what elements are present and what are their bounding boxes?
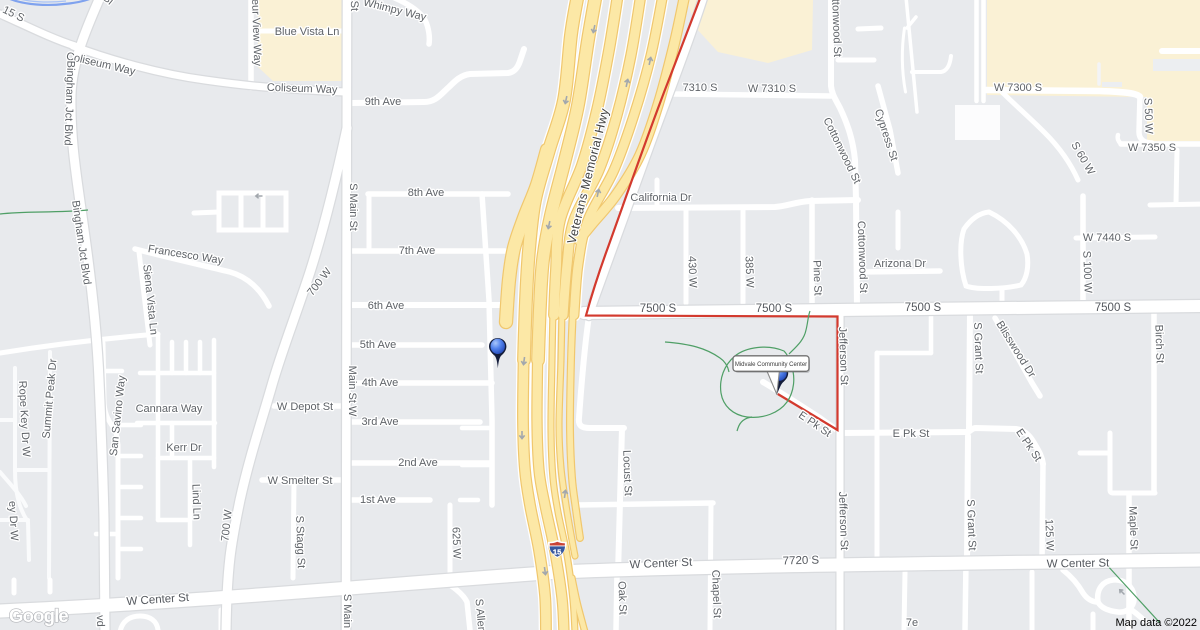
svg-text:W 7440 S: W 7440 S — [1083, 232, 1131, 244]
svg-text:E Pk St: E Pk St — [893, 428, 930, 440]
svg-text:S 50 W: S 50 W — [1141, 98, 1154, 135]
svg-text:vd: vd — [94, 615, 106, 627]
svg-text:7500 S: 7500 S — [905, 302, 942, 314]
svg-text:430 W: 430 W — [685, 256, 698, 289]
svg-text:Pine St: Pine St — [810, 260, 823, 296]
svg-text:Blue Vista Ln: Blue Vista Ln — [275, 26, 340, 38]
svg-text:7310 S: 7310 S — [683, 82, 718, 94]
svg-text:7720 S: 7720 S — [783, 555, 820, 568]
svg-text:W Depot St: W Depot St — [277, 401, 333, 413]
svg-text:S 100 W: S 100 W — [1080, 251, 1093, 294]
svg-text:Oak St: Oak St — [615, 581, 628, 615]
svg-text:625 W: 625 W — [449, 527, 462, 560]
svg-text:W Smelter St: W Smelter St — [268, 475, 333, 487]
svg-text:Main St W: Main St W — [346, 366, 358, 417]
svg-text:15: 15 — [553, 547, 562, 556]
svg-text:S Grant St: S Grant St — [971, 322, 985, 374]
svg-text:3rd Ave: 3rd Ave — [361, 416, 398, 428]
svg-text:385 W: 385 W — [742, 256, 755, 289]
svg-text:9th Ave: 9th Ave — [365, 96, 402, 108]
svg-text:1st Ave: 1st Ave — [360, 494, 396, 506]
svg-text:W 7350 S: W 7350 S — [1128, 142, 1176, 154]
svg-text:8th Ave: 8th Ave — [408, 187, 445, 199]
svg-text:5th Ave: 5th Ave — [360, 339, 397, 351]
svg-text:Lind Ln: Lind Ln — [189, 484, 202, 520]
svg-text:6th Ave: 6th Ave — [368, 300, 405, 312]
svg-text:2nd Ave: 2nd Ave — [398, 457, 438, 469]
svg-text:Arizona Dr: Arizona Dr — [874, 258, 926, 270]
svg-text:7500 S: 7500 S — [1095, 302, 1132, 314]
svg-text:Google: Google — [9, 605, 68, 626]
svg-text:Map data ©2022: Map data ©2022 — [1116, 617, 1198, 629]
svg-text:California Dr: California Dr — [630, 192, 691, 204]
svg-text:W 7300 S: W 7300 S — [994, 82, 1042, 94]
svg-text:S Stagg St: S Stagg St — [293, 515, 307, 568]
svg-text:W 7310 S: W 7310 S — [748, 83, 796, 95]
svg-text:Chapel St: Chapel St — [709, 570, 723, 619]
svg-text:7500 S: 7500 S — [756, 303, 793, 315]
svg-text:Jefferson St: Jefferson St — [836, 491, 850, 550]
svg-text:Locust St: Locust St — [620, 450, 634, 496]
svg-text:7th Ave: 7th Ave — [399, 245, 436, 257]
svg-text:Jefferson St: Jefferson St — [836, 326, 850, 385]
svg-text:W Center St: W Center St — [1047, 557, 1111, 570]
svg-text:St: St — [348, 0, 360, 11]
svg-text:Birch St: Birch St — [1152, 324, 1165, 363]
svg-text:S Grant St: S Grant St — [964, 499, 978, 551]
svg-text:S Main St: S Main St — [347, 183, 359, 231]
svg-text:7500 S: 7500 S — [640, 303, 677, 315]
svg-text:Cottonwood St: Cottonwood St — [855, 221, 870, 294]
svg-text:125 W: 125 W — [1042, 519, 1055, 552]
svg-text:ey Dr W: ey Dr W — [6, 501, 20, 542]
svg-text:S Main: S Main — [341, 594, 353, 628]
svg-text:Kerr Dr: Kerr Dr — [166, 442, 202, 454]
svg-text:Cannara Way: Cannara Way — [136, 403, 203, 415]
svg-text:7e: 7e — [906, 617, 918, 629]
svg-text:Coliseum Way: Coliseum Way — [267, 82, 338, 96]
svg-text:4th Ave: 4th Ave — [362, 377, 399, 389]
svg-text:Maple St: Maple St — [1126, 506, 1140, 550]
svg-text:Midvale Community Center: Midvale Community Center — [735, 362, 807, 368]
